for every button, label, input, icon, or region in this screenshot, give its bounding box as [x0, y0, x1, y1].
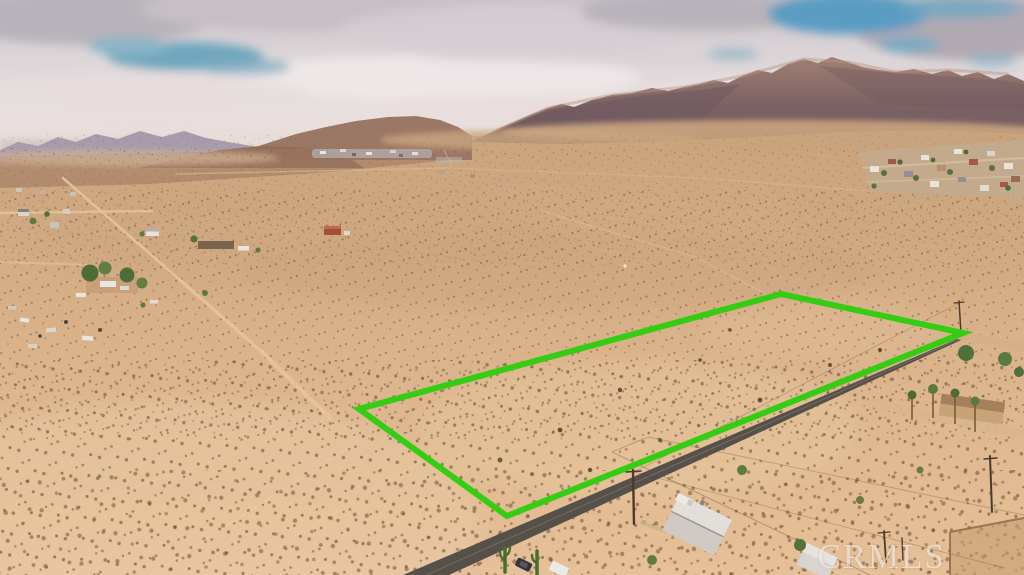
aerial-photo: CRMLS [0, 0, 1024, 575]
shrub-texture [0, 134, 1024, 575]
crmls-watermark: CRMLS [817, 537, 946, 575]
landscape-svg [0, 0, 1024, 575]
